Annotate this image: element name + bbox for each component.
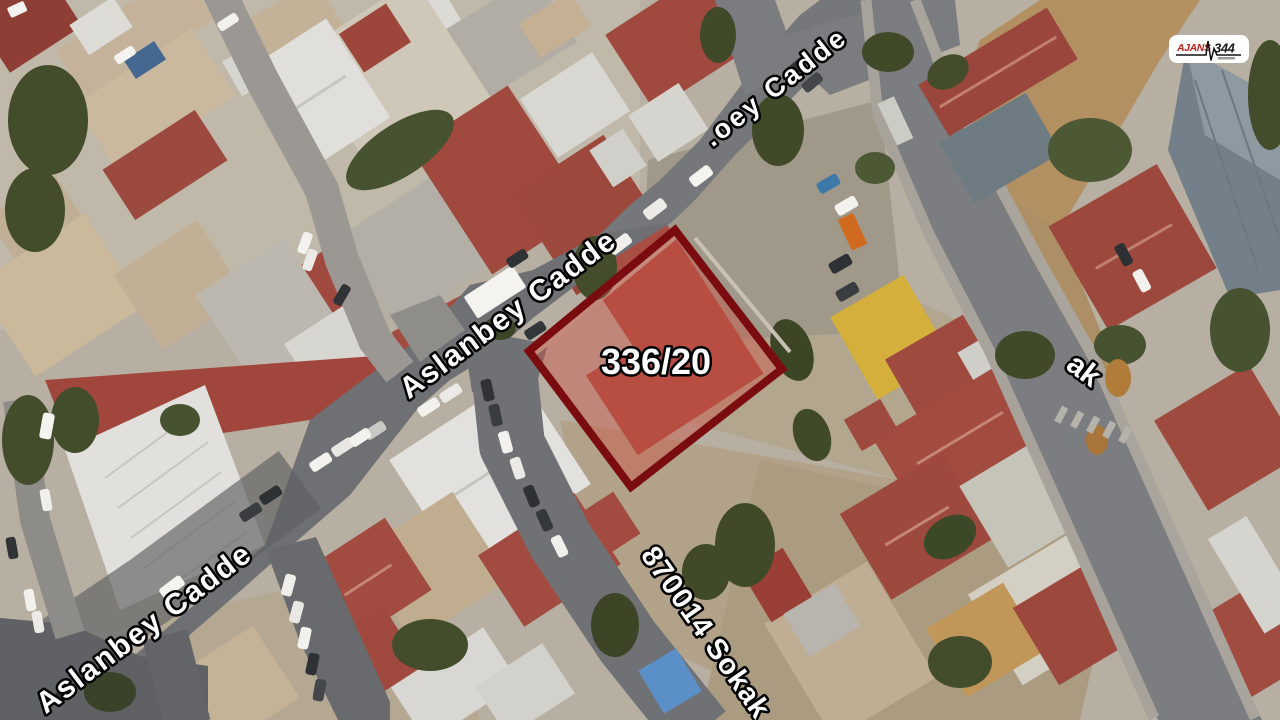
svg-text:336/20: 336/20: [601, 341, 711, 382]
svg-text:344: 344: [1214, 41, 1236, 56]
